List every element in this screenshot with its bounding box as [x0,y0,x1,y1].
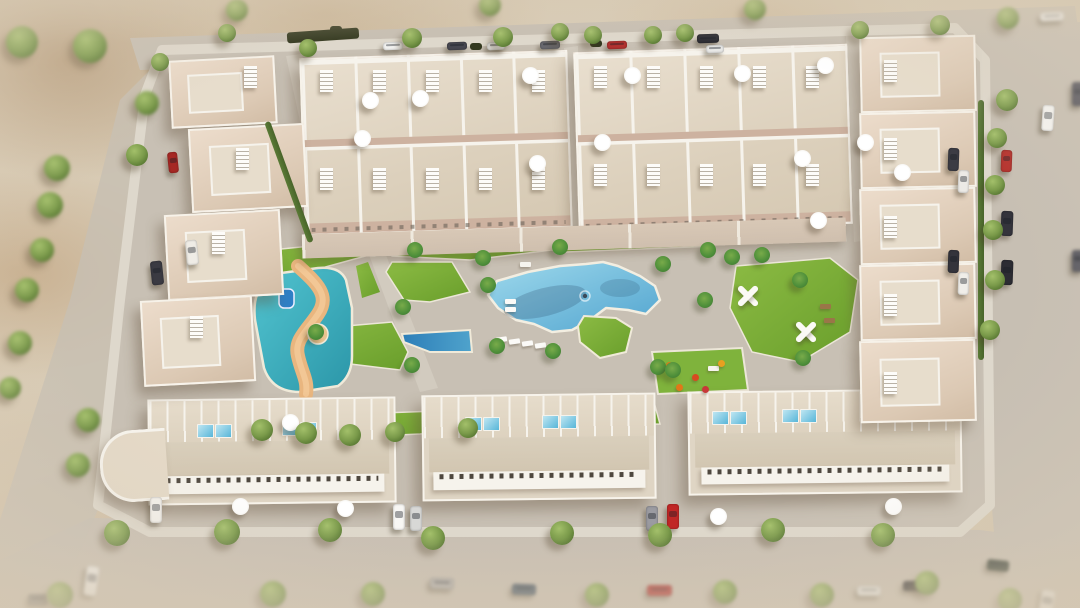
car [697,34,719,44]
tree [218,24,236,42]
roof [428,435,649,472]
tree [339,424,361,446]
play-equipment [718,360,725,367]
tree [996,89,1018,111]
car [447,42,467,51]
car [540,41,560,50]
tree [930,15,950,35]
tree [493,27,513,47]
tree [761,518,785,542]
pergola-stairs [884,60,897,82]
balcony-strip [160,474,385,494]
pergola-stairs [479,70,492,92]
pergola-stairs [426,168,439,190]
sun-lounger [505,307,516,312]
tree [584,26,602,44]
pergola-stairs [426,70,439,92]
tree [151,53,169,71]
palm-tree [545,343,561,359]
pergola-stairs [320,168,333,190]
apartment-block [147,396,396,505]
palm-tree [489,338,505,354]
plunge-pool [483,417,500,431]
plunge-pool [197,424,214,438]
roof [695,430,955,467]
car [430,578,454,590]
pergola-stairs [244,66,257,88]
parasol [734,65,751,82]
car [857,586,881,596]
parasol [594,134,611,151]
tree [713,580,737,604]
car [410,506,422,531]
car [958,272,970,295]
palm-tree [650,359,666,375]
tree [6,26,38,58]
pergola-stairs [806,164,819,186]
plunge-pool [730,411,747,425]
tree [851,21,869,39]
car [512,584,536,596]
parasol [529,155,546,172]
parasol [624,67,641,84]
villa [164,209,284,301]
hedge [287,28,360,44]
car [706,45,724,54]
tree [998,588,1022,608]
pergola-stairs [212,232,225,254]
tree [37,192,63,218]
parasol [810,212,827,229]
tree [744,0,766,20]
villa [168,55,277,128]
tree [648,523,672,547]
tree [421,526,445,550]
plunge-pool [782,409,799,423]
pergola-stairs [594,164,607,186]
palm-tree [792,272,808,288]
tree [985,175,1005,195]
tree [644,26,662,44]
car [986,559,1009,572]
tree [47,582,73,608]
bench [708,366,719,371]
parasol [232,498,249,515]
palm-tree [480,277,496,293]
villa [859,339,977,423]
tree [15,278,39,302]
pergola-stairs [647,66,660,88]
tree [135,91,159,115]
tree [402,28,422,48]
palm-tree [795,350,811,366]
car [667,504,679,529]
tree [251,419,273,441]
hedge [330,26,342,33]
parasol [885,498,902,515]
play-equipment [676,384,683,391]
car [948,148,960,171]
palm-tree [754,247,770,263]
pergola-stairs [479,168,492,190]
tree [66,453,90,477]
car [1041,105,1055,132]
plunge-pool [712,411,729,425]
scene-objects [0,0,1080,608]
pergola-stairs [884,372,897,394]
tree [8,331,32,355]
palm-tree [475,250,491,266]
pergola-stairs [190,316,203,338]
tree [214,519,240,545]
curved-building-end [98,428,170,504]
pergola-stairs [884,216,897,238]
palm-tree [308,324,324,340]
car [185,239,200,265]
palm-tree [552,239,568,255]
tree [44,155,70,181]
tree [295,422,317,444]
parasol [894,164,911,181]
tree [980,320,1000,340]
tree [76,408,100,432]
tree [985,270,1005,290]
tree [260,581,286,607]
palm-tree [655,256,671,272]
car [150,497,162,523]
parasol [710,508,727,525]
tree [126,144,148,166]
aerial-render-scene [0,0,1080,608]
sun-lounger [509,338,521,344]
tree [30,238,54,262]
parasol [522,67,539,84]
pergola-stairs [700,66,713,88]
tree [585,583,609,607]
villa [859,35,977,113]
tree [810,583,834,607]
car [1072,82,1080,106]
tree [479,0,501,16]
car [393,504,405,530]
tree [997,7,1019,29]
car [1001,150,1013,172]
car [1072,250,1080,272]
tree [299,39,317,57]
parasol [337,500,354,517]
exercise-pergola [731,279,765,313]
apartment-block [421,393,656,502]
bench [824,318,835,323]
tree [318,518,342,542]
car [607,41,627,50]
palm-tree [665,362,681,378]
car [647,585,672,596]
bench [520,262,531,267]
play-equipment [702,386,709,393]
bench [820,304,831,309]
palm-tree [407,242,423,258]
exercise-pergola [789,315,823,349]
parasol [412,90,429,107]
pergola-stairs [236,148,249,170]
sun-lounger [522,340,534,346]
palm-tree [700,242,716,258]
plunge-pool [215,424,232,438]
car [1040,11,1064,21]
pergola-stairs [753,66,766,88]
palm-tree [395,299,411,315]
tree [73,29,107,63]
tree [458,418,478,438]
palm-tree [697,292,713,308]
plunge-pool [560,415,577,429]
car [948,250,960,273]
tree [987,128,1007,148]
parasol [362,92,379,109]
plunge-pool [542,415,559,429]
pergola-stairs [884,138,897,160]
tree [676,24,694,42]
pergola-stairs [884,294,897,316]
tree [361,582,385,606]
tree [0,377,21,399]
pergola-stairs [753,164,766,186]
tree [871,523,895,547]
pergola-stairs [700,164,713,186]
pergola-stairs [647,164,660,186]
car [383,42,403,51]
parasol [794,150,811,167]
car [150,260,164,285]
pergola-stairs [373,70,386,92]
palm-tree [724,249,740,265]
palm-tree [404,357,420,373]
plunge-pool [800,409,817,423]
tree [104,520,130,546]
parasol [857,134,874,151]
tree [385,422,405,442]
car [1038,589,1056,608]
play-equipment [692,374,699,381]
tree [983,220,1003,240]
tree [550,521,574,545]
hedge [470,43,482,50]
balcony-strip [701,464,950,484]
car [167,152,179,174]
tree [915,571,939,595]
car [958,170,970,193]
balcony-strip [433,470,645,490]
parasol [817,57,834,74]
sun-lounger [505,299,516,304]
tree [551,23,569,41]
pergola-stairs [594,66,607,88]
villa [140,295,256,387]
car [83,565,100,597]
car [28,594,48,605]
pergola-stairs [373,168,386,190]
tree [226,0,248,21]
pergola-stairs [320,70,333,92]
parasol [354,130,371,147]
